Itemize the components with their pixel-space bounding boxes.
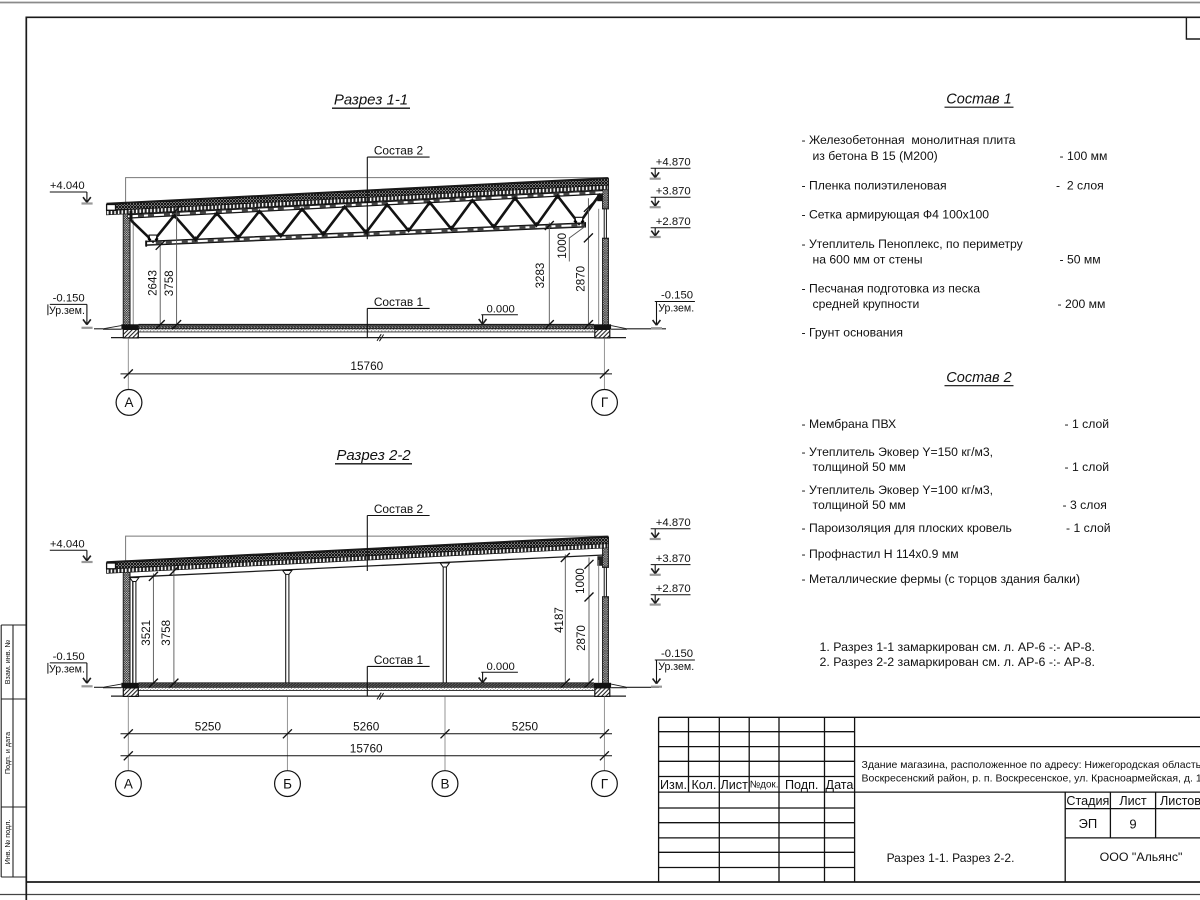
svg-text:Изм.: Изм.: [660, 778, 687, 792]
svg-text:- Металлические фермы (с торцо: - Металлические фермы (с торцов здания б…: [802, 572, 1081, 586]
svg-text:- 100 мм: - 100 мм: [1060, 149, 1108, 163]
svg-text:толщиной 50 мм: толщиной 50 мм: [813, 498, 906, 512]
svg-text:- Пароизоляция для плоских кро: - Пароизоляция для плоских кровель: [802, 521, 1012, 535]
svg-text:1000: 1000: [574, 568, 587, 594]
svg-text:-0.150: -0.150: [53, 651, 85, 663]
svg-text:-0.150: -0.150: [661, 290, 693, 302]
svg-text:ЭП: ЭП: [1079, 816, 1098, 831]
svg-text:Ур.зем.: Ур.зем.: [49, 664, 85, 676]
svg-text:Воскресенский район, р. п. Вос: Воскресенский район, р. п. Воскресенское…: [862, 773, 1200, 785]
svg-text:- 2 слоя: - 2 слоя: [1056, 179, 1104, 193]
svg-text:Взам. инв. №: Взам. инв. №: [3, 639, 12, 684]
svg-text:А: А: [124, 776, 133, 791]
svg-text:+4.870: +4.870: [656, 156, 691, 168]
svg-text:0.000: 0.000: [487, 661, 515, 673]
svg-text:- Утеплитель Эковер Y=100 кг/м: - Утеплитель Эковер Y=100 кг/м3,: [802, 483, 994, 497]
svg-text:- Грунт основания: - Грунт основания: [802, 326, 903, 340]
svg-text:Г: Г: [601, 776, 609, 791]
svg-text:- 50 мм: - 50 мм: [1060, 252, 1101, 266]
svg-text:Кол.: Кол.: [691, 778, 716, 792]
svg-text:Разрез 1-1: Разрез 1-1: [334, 92, 408, 109]
svg-text:- 1 слой: - 1 слой: [1065, 460, 1110, 474]
svg-text:Лист: Лист: [1119, 794, 1147, 808]
svg-text:-0.150: -0.150: [53, 293, 85, 305]
svg-text:Лист: Лист: [721, 778, 749, 792]
svg-text:- 1 слой: - 1 слой: [1066, 521, 1111, 535]
svg-text:- Пленка полиэтиленовая: - Пленка полиэтиленовая: [802, 179, 947, 193]
svg-text:+4.870: +4.870: [656, 517, 691, 529]
svg-text:5260: 5260: [353, 719, 380, 733]
svg-text:на 600 мм от стены: на 600 мм от стены: [813, 252, 923, 266]
svg-text:Состав 1: Состав 1: [374, 653, 424, 667]
svg-text:Состав 2: Состав 2: [946, 370, 1011, 386]
svg-text:5250: 5250: [512, 719, 539, 733]
svg-text:2643: 2643: [146, 270, 159, 296]
svg-text:из бетона В 15 (М200): из бетона В 15 (М200): [813, 149, 938, 163]
svg-text:+3.870: +3.870: [656, 185, 691, 197]
svg-text:9: 9: [1129, 816, 1136, 831]
svg-text:15760: 15760: [350, 741, 383, 755]
svg-text:- 3 слоя: - 3 слоя: [1063, 498, 1107, 512]
svg-text:Дата: Дата: [826, 778, 854, 792]
svg-text:2870: 2870: [575, 266, 588, 292]
svg-text:4187: 4187: [553, 607, 566, 633]
svg-text:Стадия: Стадия: [1066, 794, 1109, 808]
svg-text:+4.040: +4.040: [50, 539, 85, 551]
svg-text:+3.870: +3.870: [656, 553, 691, 565]
svg-text:3758: 3758: [163, 270, 176, 296]
svg-text:Разрез 1-1. Разрез 2-2.: Разрез 1-1. Разрез 2-2.: [887, 851, 1015, 865]
svg-text:средней крупности: средней крупности: [813, 297, 920, 311]
svg-text:Подп. и дата: Подп. и дата: [3, 732, 12, 774]
svg-text:- Железобетонная монолитная п: - Железобетонная монолитная плита: [802, 133, 1016, 147]
svg-text:Состав 2: Состав 2: [374, 502, 424, 516]
svg-text:В: В: [440, 776, 449, 791]
svg-text:15760: 15760: [350, 359, 383, 373]
svg-text:Подп.: Подп.: [785, 778, 818, 792]
svg-text:А: А: [124, 395, 133, 410]
svg-text:- 200 мм: - 200 мм: [1058, 297, 1106, 311]
svg-text:- Песчаная подготовка из песка: - Песчаная подготовка из песка: [802, 282, 981, 296]
svg-text:5250: 5250: [195, 719, 222, 733]
svg-text:+2.870: +2.870: [656, 583, 691, 595]
svg-text:Листов: Листов: [1160, 794, 1200, 808]
svg-text:Ур.зем.: Ур.зем.: [658, 302, 694, 314]
svg-text:Состав 1: Состав 1: [374, 295, 424, 309]
svg-text:- Профнастил Н 114х0.9 мм: - Профнастил Н 114х0.9 мм: [802, 547, 959, 561]
svg-text:1000: 1000: [556, 233, 569, 259]
svg-text:+4.040: +4.040: [50, 180, 85, 192]
svg-text:- Утеплитель Эковер Y=150 кг/м: - Утеплитель Эковер Y=150 кг/м3,: [802, 445, 994, 459]
svg-text:толщиной 50 мм: толщиной 50 мм: [813, 460, 906, 474]
svg-text:№док.: №док.: [750, 780, 779, 791]
svg-text:Инв. № подл.: Инв. № подл.: [3, 820, 12, 865]
svg-text:+2.870: +2.870: [656, 216, 691, 228]
svg-text:Здание магазина, расположенное: Здание магазина, расположенное по адресу…: [862, 759, 1200, 771]
svg-text:Б: Б: [283, 776, 292, 791]
svg-text:-0.150: -0.150: [661, 648, 693, 660]
svg-text:1. Разрез 1-1 замаркирован см.: 1. Разрез 1-1 замаркирован см. л. АР-6 -…: [820, 640, 1096, 654]
svg-text:- Сетка армирующая Ф4 100х100: - Сетка армирующая Ф4 100х100: [802, 208, 990, 222]
svg-text:Разрез 2-2: Разрез 2-2: [336, 447, 411, 464]
svg-text:- 1 слой: - 1 слой: [1065, 417, 1110, 431]
svg-text:Ур.зем.: Ур.зем.: [49, 305, 85, 317]
svg-text:3521: 3521: [140, 620, 153, 646]
svg-text:3758: 3758: [160, 620, 173, 646]
svg-text:- Мембрана ПВХ: - Мембрана ПВХ: [802, 417, 897, 431]
svg-text:2870: 2870: [575, 625, 588, 651]
svg-text:3283: 3283: [534, 263, 547, 289]
svg-text:ООО "Альянс": ООО "Альянс": [1100, 850, 1183, 864]
svg-text:0.000: 0.000: [487, 303, 515, 315]
svg-text:2. Разрез 2-2 замаркирован см.: 2. Разрез 2-2 замаркирован см. л. АР-6 -…: [820, 655, 1096, 669]
svg-text:Состав 2: Состав 2: [374, 144, 424, 158]
svg-text:Г: Г: [601, 395, 609, 410]
svg-text:Состав 1: Состав 1: [946, 91, 1011, 107]
svg-text:- Утеплитель Пеноплекс, по пер: - Утеплитель Пеноплекс, по периметру: [802, 237, 1024, 251]
svg-text:Ур.зем.: Ур.зем.: [658, 661, 694, 673]
